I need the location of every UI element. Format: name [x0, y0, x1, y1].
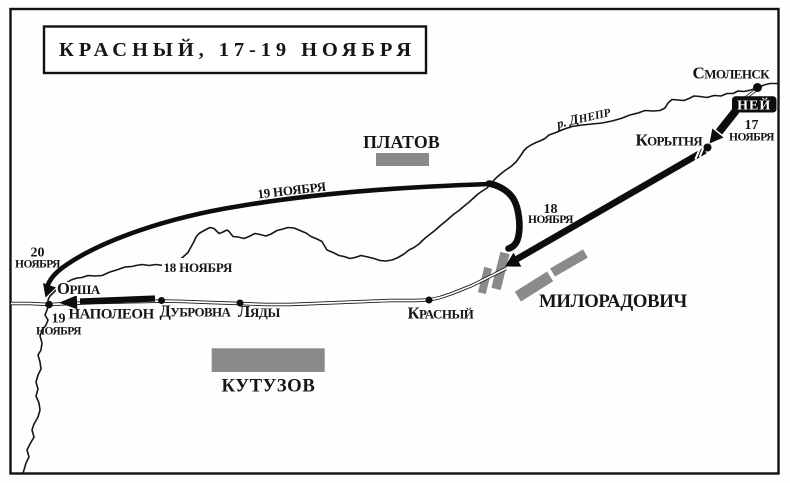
svg-text:ЛЯДЫ: ЛЯДЫ [238, 302, 280, 321]
svg-text:ПЛАТОВ: ПЛАТОВ [363, 132, 440, 152]
svg-text:МИЛОРАДОВИЧ: МИЛОРАДОВИЧ [539, 291, 688, 312]
svg-text:19: 19 [52, 312, 66, 327]
svg-text:ОРША: ОРША [57, 279, 101, 298]
svg-text:КРАСНЫЙ: КРАСНЫЙ [408, 304, 474, 323]
svg-text:КУТУЗОВ: КУТУЗОВ [222, 376, 316, 397]
svg-text:НЕЙ: НЕЙ [737, 96, 771, 113]
svg-text:КОРЫТНЯ: КОРЫТНЯ [636, 131, 704, 150]
svg-text:НОЯБРЯ: НОЯБРЯ [15, 259, 61, 271]
svg-text:ДУБРОВНА: ДУБРОВНА [160, 302, 232, 321]
svg-text:СМОЛЕНСК: СМОЛЕНСК [693, 64, 771, 83]
svg-text:НОЯБРЯ: НОЯБРЯ [36, 326, 82, 338]
svg-text:18 НОЯБРЯ: 18 НОЯБРЯ [164, 260, 234, 275]
svg-text:КРАСНЫЙ, 17-19 НОЯБРЯ: КРАСНЫЙ, 17-19 НОЯБРЯ [59, 38, 416, 61]
svg-text:НОЯБРЯ: НОЯБРЯ [729, 132, 775, 144]
svg-text:НОЯБРЯ: НОЯБРЯ [528, 214, 574, 226]
svg-text:НАПОЛЕОН: НАПОЛЕОН [69, 307, 155, 323]
